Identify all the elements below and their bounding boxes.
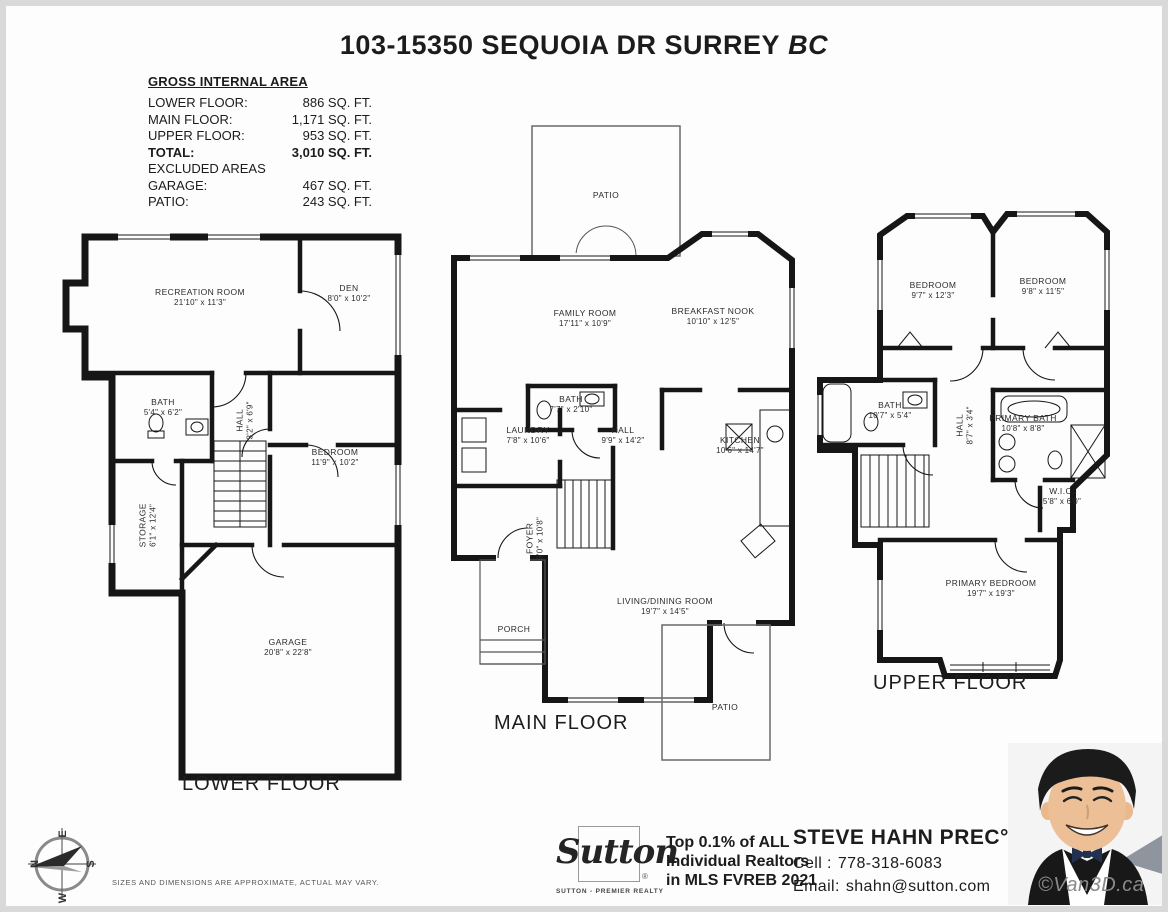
upper-floor-drawing bbox=[815, 200, 1135, 700]
main-floor-name: MAIN FLOOR bbox=[494, 712, 628, 735]
compass-s-label: S bbox=[85, 860, 97, 867]
agent-cell-number: 778-318-6083 bbox=[838, 855, 942, 872]
compass-w-label: W bbox=[57, 892, 69, 903]
area-row-garage: GARAGE:467 SQ. FT. bbox=[148, 178, 372, 195]
sutton-registered-mark: ® bbox=[642, 872, 648, 881]
agent-email-address: shahn@sutton.com bbox=[846, 878, 991, 895]
area-row-patio: PATIO:243 SQ. FT. bbox=[148, 194, 372, 211]
upper-floor-plan: BEDROOM9'7" x 12'3" BEDROOM9'8" x 11'5" … bbox=[815, 200, 1135, 700]
area-row-main: MAIN FLOOR:1,171 SQ. FT. bbox=[148, 112, 372, 129]
lower-floor-drawing bbox=[60, 225, 405, 790]
area-table-heading: GROSS INTERNAL AREA bbox=[148, 74, 372, 89]
watermark-text: ©Van3D.ca bbox=[1038, 874, 1144, 897]
agent-cell-line: Cell :778-318-6083 bbox=[793, 855, 1023, 873]
area-row-lower: LOWER FLOOR:886 SQ. FT. bbox=[148, 95, 372, 112]
main-floor-drawing bbox=[440, 118, 805, 766]
lower-floor-plan: RECREATION ROOM21'10" x 11'3" DEN8'0" x … bbox=[60, 225, 405, 805]
area-row-excluded: EXCLUDED AREAS bbox=[148, 161, 372, 178]
compass-n-label: N bbox=[29, 860, 41, 868]
lower-floor-name: LOWER FLOOR bbox=[182, 773, 341, 796]
upper-floor-name: UPPER FLOOR bbox=[873, 672, 1027, 695]
area-row-upper: UPPER FLOOR:953 SQ. FT. bbox=[148, 128, 372, 145]
province-text: BC bbox=[788, 30, 828, 60]
sutton-logo-text: Sutton bbox=[556, 832, 678, 872]
address-text: 103-15350 SEQUOIA DR SURREY bbox=[340, 30, 780, 60]
sutton-tagline: SUTTON - PREMIER REALTY bbox=[556, 888, 664, 895]
agent-info: STEVE HAHN PREC° Cell :778-318-6083 Emai… bbox=[793, 826, 1023, 896]
compass-e-label: E bbox=[57, 830, 69, 837]
floorplan-page: 103-15350 SEQUOIA DR SURREYBC GROSS INTE… bbox=[0, 0, 1168, 912]
page-title: 103-15350 SEQUOIA DR SURREYBC bbox=[0, 30, 1168, 61]
disclaimer-text: SIZES AND DIMENSIONS ARE APPROXIMATE, AC… bbox=[112, 878, 379, 887]
agent-name: STEVE HAHN PREC° bbox=[793, 826, 1023, 850]
compass-rose-icon: E S W N bbox=[22, 820, 102, 906]
gross-internal-area-table: GROSS INTERNAL AREA LOWER FLOOR:886 SQ. … bbox=[148, 74, 372, 211]
area-row-total: TOTAL:3,010 SQ. FT. bbox=[148, 145, 372, 162]
main-floor-plan: PATIO FAMILY ROOM17'11" x 10'9" BREAKFAS… bbox=[440, 118, 805, 766]
agent-email-line: Email:shahn@sutton.com bbox=[793, 878, 1023, 896]
